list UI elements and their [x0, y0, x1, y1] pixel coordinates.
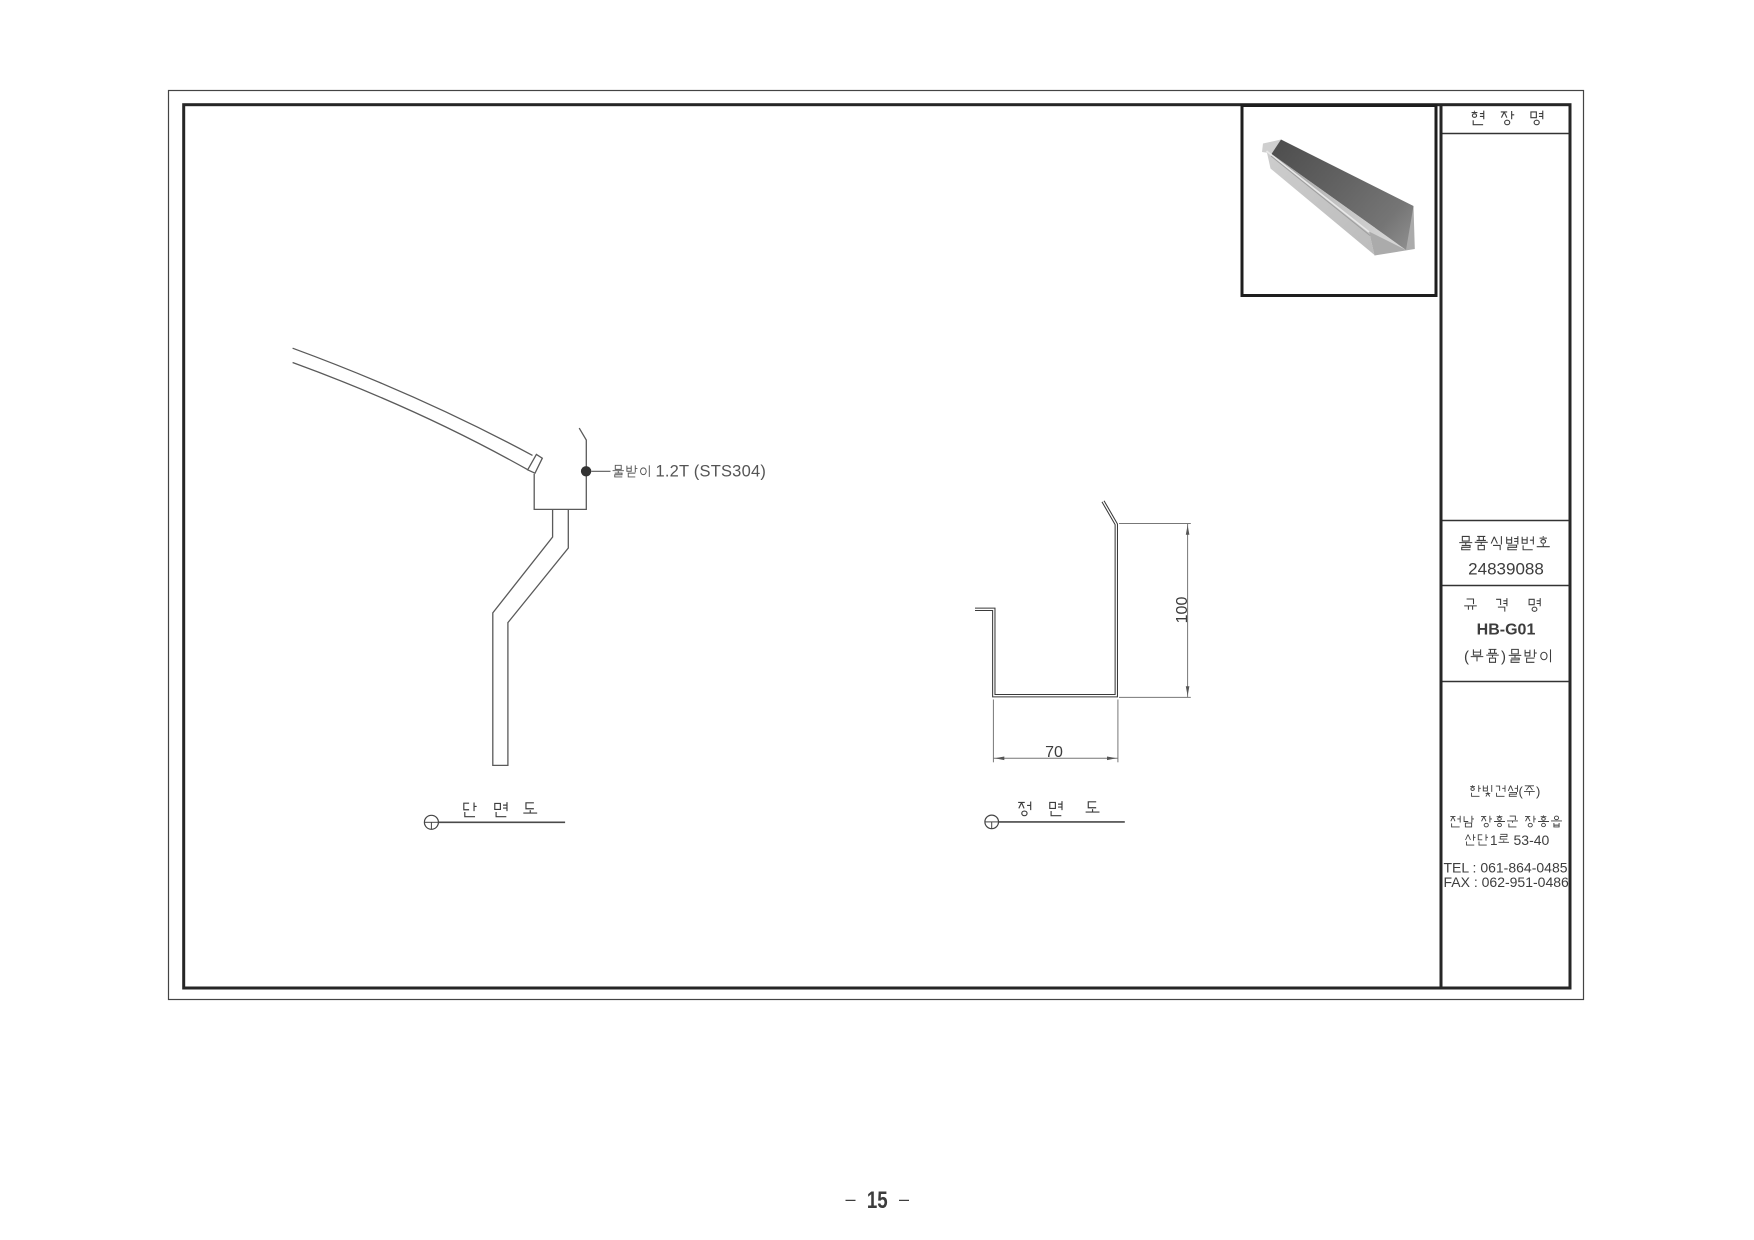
svg-text:HB-G01: HB-G01: [1477, 622, 1536, 639]
svg-text:FAX : 062-951-0486: FAX : 062-951-0486: [1444, 874, 1570, 890]
svg-text:): ): [1536, 784, 1540, 799]
svg-text:15: 15: [867, 1187, 888, 1214]
svg-text:1: 1: [1490, 833, 1498, 848]
svg-text:1.2T (STS304): 1.2T (STS304): [656, 463, 767, 481]
svg-text:): ): [1501, 649, 1506, 666]
svg-text:100: 100: [1174, 597, 1191, 624]
svg-text:53-40: 53-40: [1514, 832, 1550, 848]
svg-text:(: (: [1464, 649, 1469, 666]
svg-text:70: 70: [1045, 744, 1063, 761]
svg-text:24839088: 24839088: [1468, 560, 1544, 579]
svg-text:–: –: [899, 1189, 909, 1209]
svg-text:–: –: [845, 1189, 855, 1209]
svg-text:(: (: [1519, 784, 1524, 799]
